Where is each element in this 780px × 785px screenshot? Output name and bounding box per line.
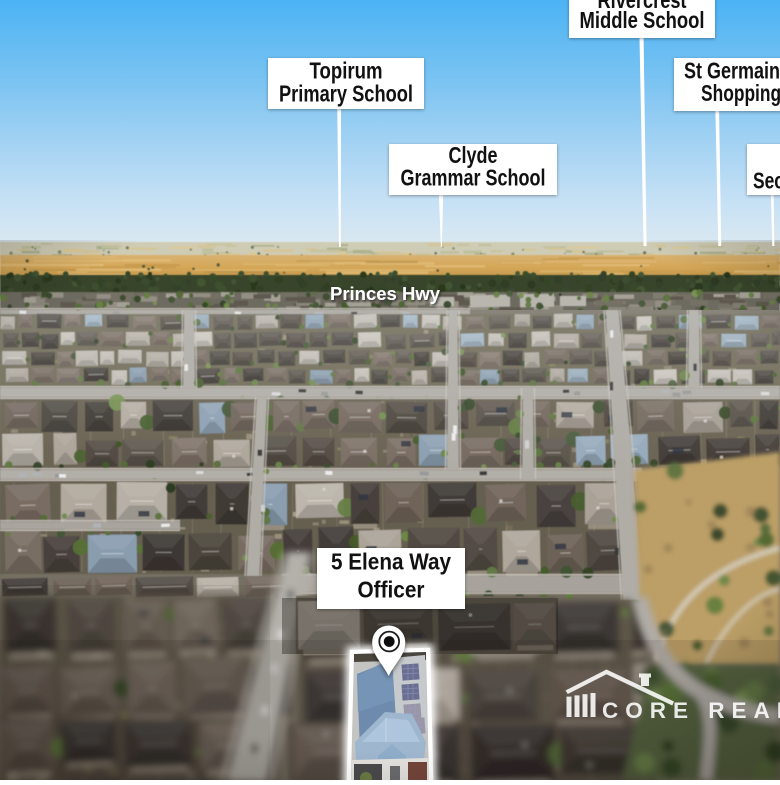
svg-text:Middle School: Middle School [580,7,705,33]
svg-text:CORE REAL: CORE REAL [602,698,780,723]
svg-text:Princes Hwy: Princes Hwy [330,283,441,304]
svg-text:5 Elena Way: 5 Elena Way [331,549,451,575]
svg-text:Shopping Centre: Shopping Centre [701,80,780,106]
svg-text:Primary School: Primary School [279,81,413,107]
svg-text:Grammar School: Grammar School [401,165,546,191]
svg-text:Officer: Officer [358,577,425,603]
svg-text:Secondary: Secondary [753,168,780,194]
